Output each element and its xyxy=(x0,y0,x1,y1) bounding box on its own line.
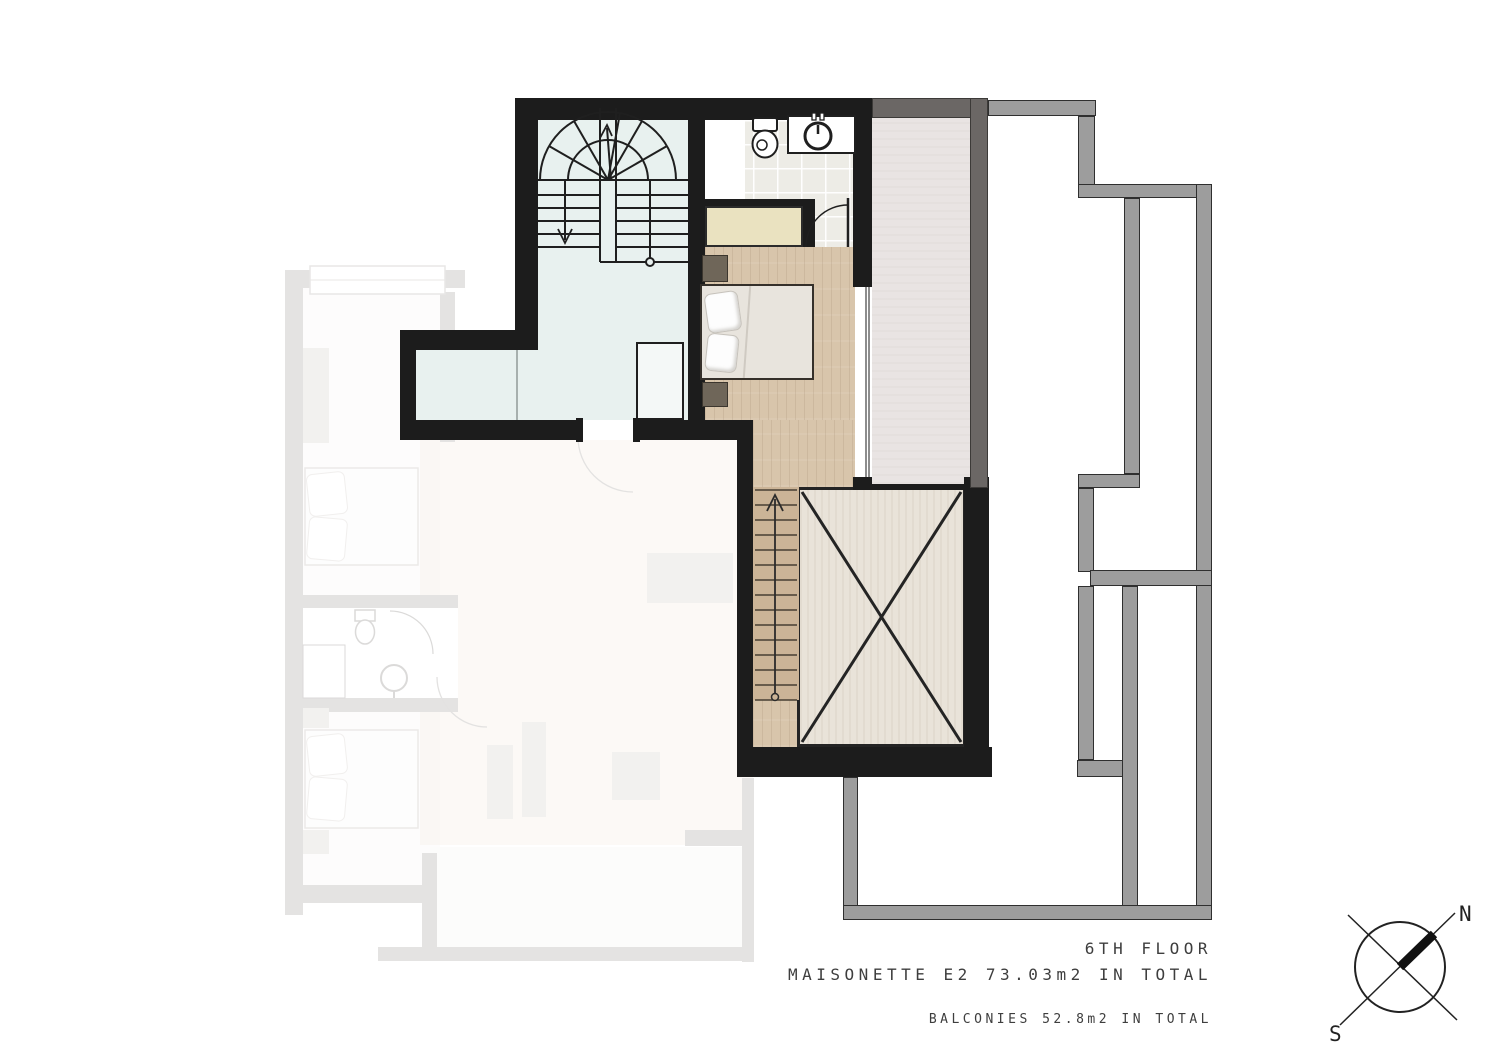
balconies-area-label: BALCONIES 52.8m2 IN TOTAL xyxy=(692,1013,1212,1026)
wall-segment xyxy=(400,420,576,440)
wall-segment xyxy=(400,330,538,350)
bedroom-floor-strip xyxy=(753,420,855,487)
winder-staircase-icon xyxy=(538,104,688,269)
nightstand xyxy=(702,255,728,282)
stairs-down-icon xyxy=(753,487,799,705)
door-swing-icon xyxy=(806,198,848,247)
window-glazing-line xyxy=(865,287,867,477)
ghost-bed xyxy=(305,730,418,828)
winter-garden-floor xyxy=(872,118,970,484)
washbasin-icon xyxy=(788,113,855,153)
balcony-railing xyxy=(1078,586,1094,760)
balcony-railing xyxy=(1196,184,1212,920)
balcony-railing xyxy=(1078,488,1094,572)
pillow xyxy=(703,290,742,334)
staircase-alcove-floor xyxy=(415,350,538,420)
wall-segment xyxy=(872,484,972,490)
wall-segment xyxy=(737,430,753,777)
title-block: 6TH FLOOR MAISONETTE E2 73.03m2 IN TOTAL… xyxy=(692,941,1212,1026)
void-open-to-below xyxy=(797,487,966,747)
wall-segment xyxy=(964,477,989,777)
balcony-railing xyxy=(1090,570,1212,586)
balcony-railing xyxy=(1078,474,1140,488)
wall-segment xyxy=(515,98,538,342)
nightstand xyxy=(702,382,728,407)
balcony-railing xyxy=(988,100,1096,116)
bathroom-fixtures xyxy=(740,110,860,255)
wall-segment xyxy=(853,477,872,490)
compass-rose-icon: N S xyxy=(1325,893,1493,1053)
duvet-edge xyxy=(743,286,751,378)
door-jamb xyxy=(633,418,640,442)
floor-label: 6TH FLOOR xyxy=(692,941,1212,957)
compass-needle-icon xyxy=(1400,934,1434,967)
ghost-bed xyxy=(305,468,418,565)
pillow xyxy=(704,332,740,373)
north-label: N xyxy=(1459,902,1472,926)
south-label: S xyxy=(1329,1022,1342,1046)
unit-area-label: MAISONETTE E2 73.03m2 IN TOTAL xyxy=(692,967,1212,983)
ghost-balcony xyxy=(430,847,753,947)
stair-treads xyxy=(538,195,688,247)
ghost-living-room xyxy=(420,440,753,845)
toilet-icon xyxy=(753,118,778,158)
ghost-bathroom xyxy=(303,608,458,698)
balcony-railing xyxy=(1124,198,1140,474)
balcony-railing xyxy=(843,777,858,920)
floor-plan-canvas: N S 6TH FLOOR MAISONETTE E2 73.03m2 IN T… xyxy=(0,0,1493,1056)
window xyxy=(855,287,870,477)
stair-landing-floor xyxy=(753,698,797,747)
direction-arrow-icon xyxy=(558,125,612,243)
wall-segment xyxy=(737,747,992,777)
balcony-railing xyxy=(1078,184,1212,198)
former-wall-line xyxy=(516,350,518,420)
door-jamb xyxy=(576,418,583,442)
balcony-railing xyxy=(843,905,1212,920)
storage-box xyxy=(636,342,684,420)
bed-icon xyxy=(700,284,814,380)
winter-garden-wall xyxy=(970,98,988,488)
void-cross-icon xyxy=(800,490,963,744)
window-glazing-line xyxy=(868,287,870,477)
shower-area xyxy=(705,120,745,204)
balcony-railing xyxy=(1122,586,1138,920)
